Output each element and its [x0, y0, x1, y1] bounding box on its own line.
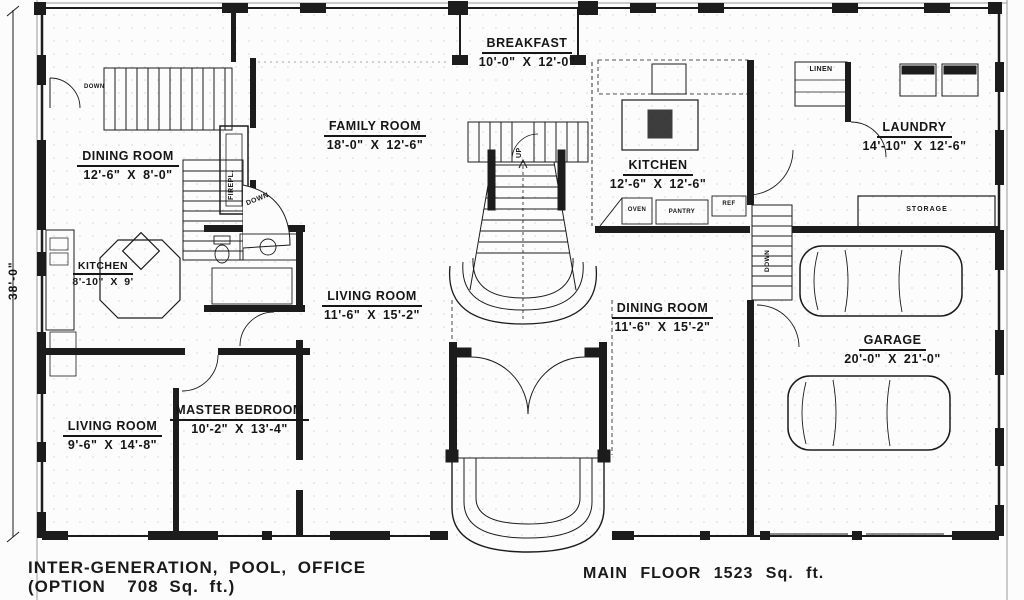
room-dims: 12'-6" X 8'-0": [48, 168, 208, 184]
room-dims: 14'-10" X 12'-6": [832, 139, 997, 155]
room-label-dining-right: DINING ROOM 11'-6" X 15'-2": [580, 301, 745, 335]
room-label-breakfast: BREAKFAST 10'-0" X 12'-0": [447, 36, 607, 70]
room-name: LAUNDRY: [877, 120, 951, 138]
room-name: KITCHEN: [623, 158, 692, 176]
floor-plan: BREAKFAST 10'-0" X 12'-0" FAMILY ROOM 18…: [0, 0, 1024, 600]
down-label-top-left: DOWN: [84, 84, 105, 92]
room-dims: 10'-0" X 12'-0": [447, 55, 607, 71]
floor-texture: [47, 10, 995, 536]
linen-label: LINEN: [797, 66, 845, 75]
fireplace-label: FIREPL.: [228, 170, 237, 200]
room-dims: 10'-2" X 13'-4": [162, 422, 317, 438]
room-label-kitchen-center: KITCHEN 12'-6" X 12'-6": [578, 158, 738, 192]
room-name: DINING ROOM: [612, 301, 714, 319]
floorplan-drawing: [0, 0, 1024, 600]
room-label-living-center: LIVING ROOM 11'-6" X 15'-2": [292, 289, 452, 323]
room-dims: 18'-0" X 12'-6": [295, 138, 455, 154]
room-dims: 20'-0" X 21'-0": [805, 352, 980, 368]
room-label-laundry: LAUNDRY 14'-10" X 12'-6": [832, 120, 997, 154]
room-name: BREAKFAST: [482, 36, 573, 54]
room-label-master-bedroom: MASTER BEDROOM 10'-2" X 13'-4": [162, 403, 317, 437]
room-name: FAMILY ROOM: [324, 119, 426, 137]
room-label-kitchen-left: KITCHEN 8'-10" X 9': [43, 260, 163, 289]
room-dims: 12'-6" X 12'-6": [578, 177, 738, 193]
room-name: LIVING ROOM: [322, 289, 422, 307]
room-name: DINING ROOM: [77, 149, 179, 167]
caption-option-line2: (OPTION 708 Sq. ft.): [28, 577, 235, 597]
caption-main-floor: MAIN FLOOR 1523 Sq. ft.: [583, 565, 824, 583]
room-name: GARAGE: [859, 333, 927, 351]
room-name: MASTER BEDROOM: [170, 403, 309, 421]
room-label-family-room: FAMILY ROOM 18'-0" X 12'-6": [295, 119, 455, 153]
pantry-label: PANTRY: [658, 209, 706, 217]
oven-label: OVEN: [624, 207, 650, 215]
room-dims: 11'-6" X 15'-2": [580, 320, 745, 336]
room-dims: 11'-6" X 15'-2": [292, 308, 452, 324]
up-label-center-stair: UP: [516, 147, 525, 158]
room-dims: 9'-6" X 14'-8": [35, 438, 190, 454]
room-label-dining-left: DINING ROOM 12'-6" X 8'-0": [48, 149, 208, 183]
room-label-garage: GARAGE 20'-0" X 21'-0": [805, 333, 980, 367]
left-dimension-label: 38'-0": [6, 261, 20, 300]
storage-label: STORAGE: [872, 206, 982, 215]
caption-option-line1: INTER-GENERATION, POOL, OFFICE: [28, 558, 366, 578]
ref-label: REF: [714, 201, 744, 209]
down-label-right-stair: DOWN: [764, 250, 772, 272]
room-name: LIVING ROOM: [63, 419, 163, 437]
room-dims: 8'-10" X 9': [43, 276, 163, 289]
room-name: KITCHEN: [73, 260, 133, 275]
